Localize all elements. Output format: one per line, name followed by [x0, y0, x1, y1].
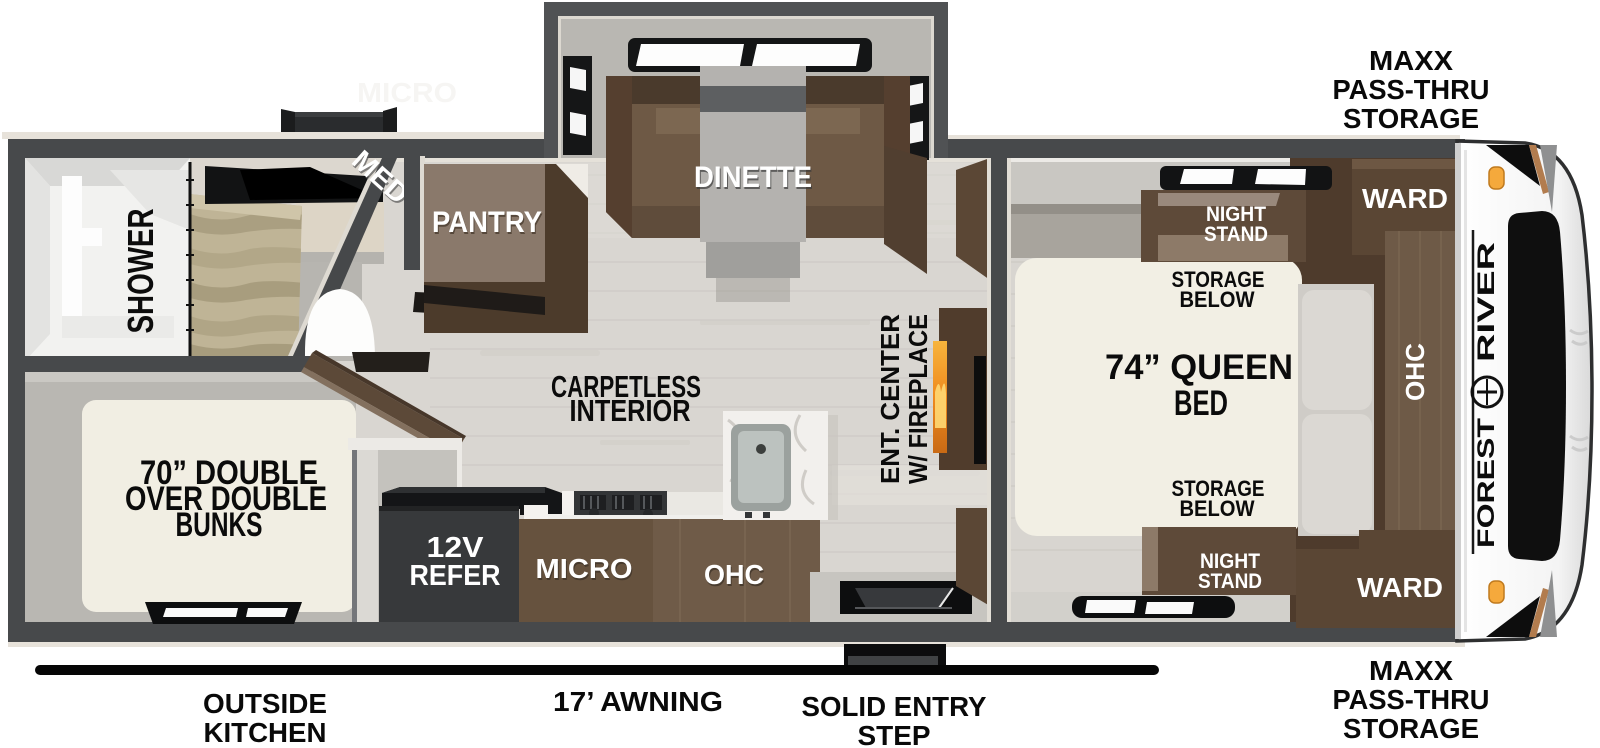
svg-text:STEP: STEP	[858, 720, 931, 748]
svg-text:W/ FIREPLACE: W/ FIREPLACE	[903, 314, 933, 484]
svg-text:17’ AWNING: 17’ AWNING	[553, 686, 723, 717]
svg-text:REFER: REFER	[410, 560, 501, 592]
svg-text:DINETTE: DINETTE	[694, 161, 812, 194]
svg-text:SHOWER: SHOWER	[120, 208, 161, 333]
svg-text:WARD: WARD	[1357, 572, 1443, 603]
svg-text:WARD: WARD	[1362, 183, 1448, 214]
svg-text:KITCHEN: KITCHEN	[204, 717, 327, 748]
svg-text:74” QUEEN: 74” QUEEN	[1105, 348, 1293, 387]
svg-text:RIVER: RIVER	[1473, 242, 1500, 362]
svg-text:MICRO: MICRO	[357, 77, 457, 108]
svg-text:MICRO: MICRO	[536, 553, 633, 584]
svg-text:STAND: STAND	[1198, 570, 1262, 593]
svg-text:MAXX: MAXX	[1369, 655, 1453, 686]
svg-text:SOLID ENTRY: SOLID ENTRY	[802, 691, 987, 722]
svg-text:STAND: STAND	[1204, 223, 1268, 246]
svg-text:PASS-THRU: PASS-THRU	[1333, 684, 1490, 715]
svg-text:PANTRY: PANTRY	[432, 206, 542, 239]
svg-text:FOREST: FOREST	[1473, 418, 1500, 548]
svg-text:ENT. CENTER: ENT. CENTER	[875, 314, 905, 484]
svg-text:BED: BED	[1174, 384, 1228, 423]
svg-text:BUNKS: BUNKS	[176, 506, 263, 544]
svg-text:BELOW: BELOW	[1180, 496, 1255, 521]
svg-text:BELOW: BELOW	[1180, 287, 1255, 312]
svg-text:OHC: OHC	[704, 559, 764, 590]
svg-text:INTERIOR: INTERIOR	[570, 393, 691, 428]
svg-text:STORAGE: STORAGE	[1343, 713, 1479, 744]
svg-text:OUTSIDE: OUTSIDE	[203, 688, 327, 719]
svg-text:PASS-THRU: PASS-THRU	[1333, 74, 1490, 105]
svg-text:MAXX: MAXX	[1369, 45, 1453, 76]
svg-text:STORAGE: STORAGE	[1343, 103, 1479, 134]
svg-text:OHC: OHC	[1400, 343, 1430, 401]
